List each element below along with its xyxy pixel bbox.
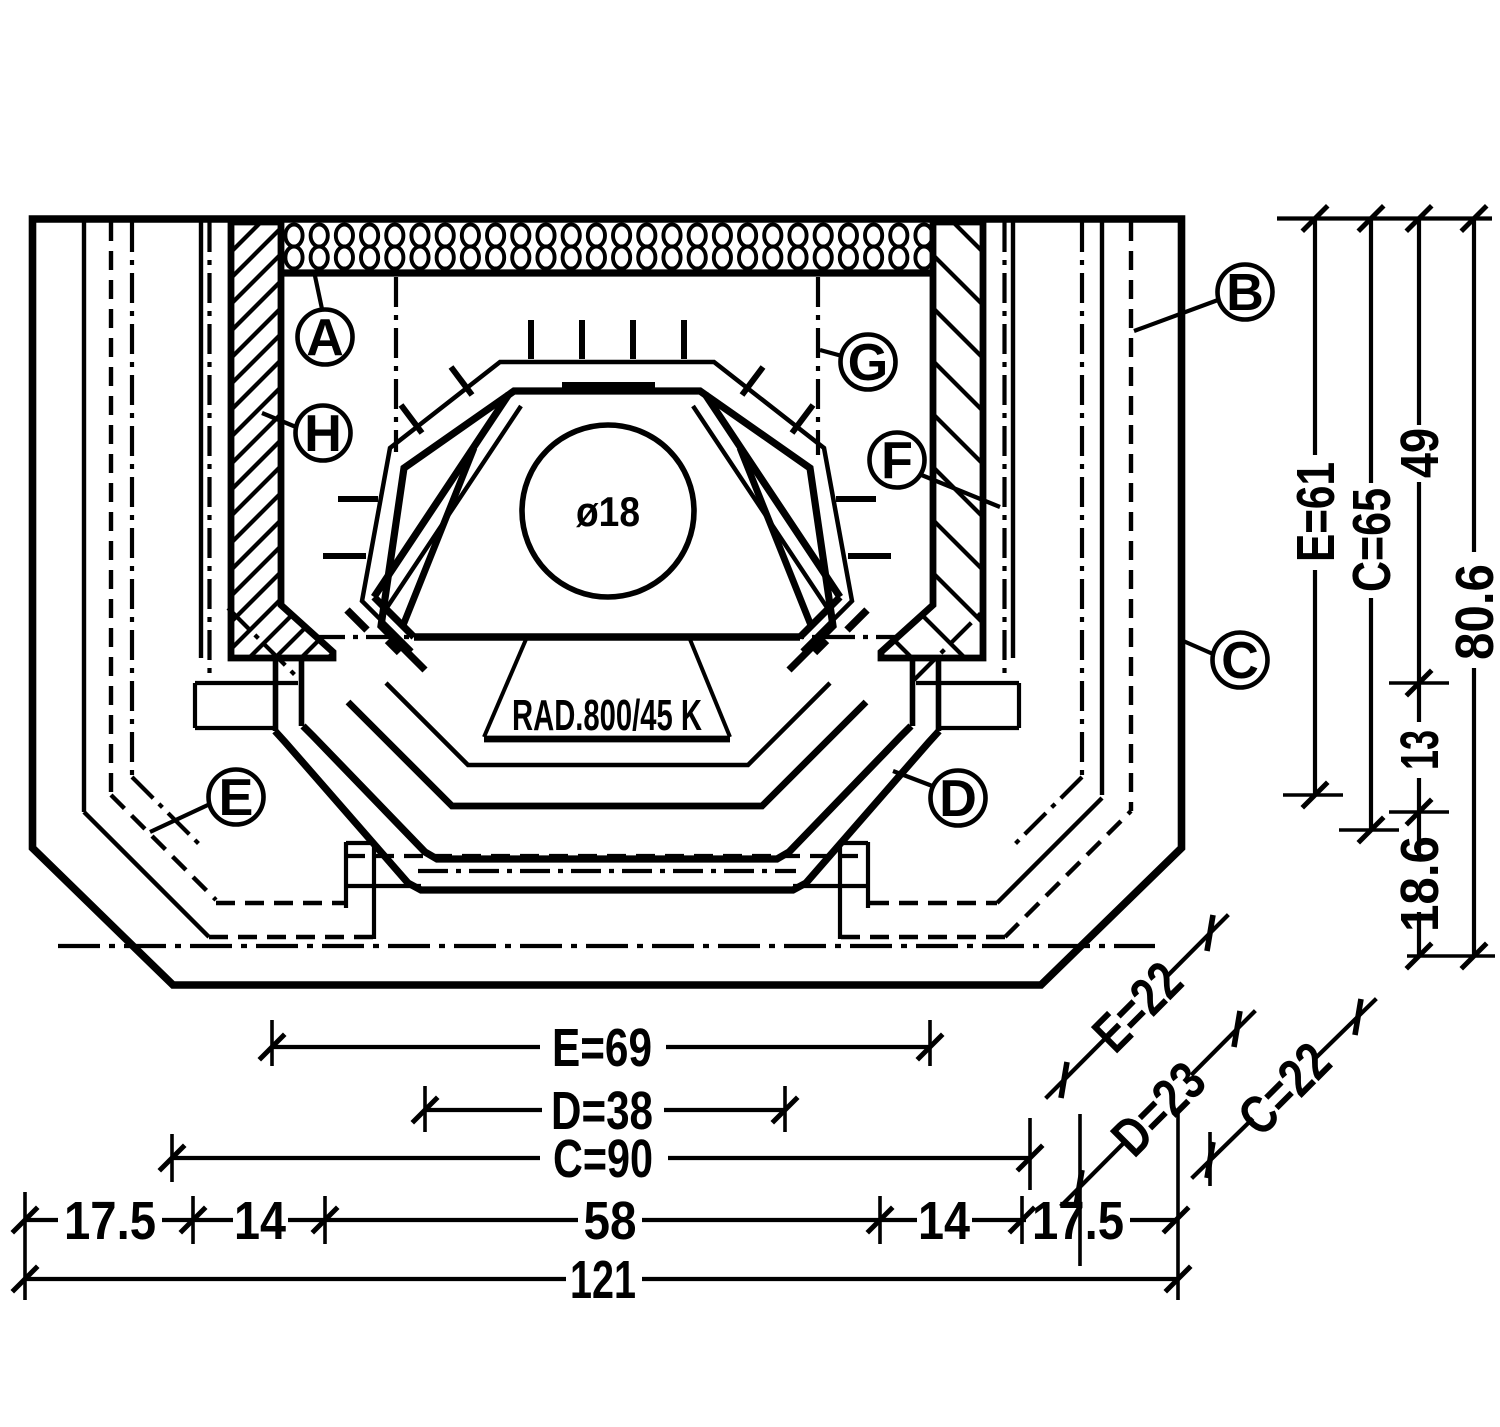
svg-text:80.6: 80.6: [1445, 564, 1500, 660]
svg-text:C=65: C=65: [1342, 488, 1402, 592]
svg-text:G: G: [848, 334, 888, 392]
svg-text:13: 13: [1390, 730, 1450, 770]
svg-text:121: 121: [570, 1250, 636, 1310]
svg-text:17.5: 17.5: [64, 1191, 156, 1251]
svg-text:D: D: [939, 770, 977, 828]
svg-text:E=61: E=61: [1286, 462, 1346, 562]
svg-text:E=69: E=69: [552, 1018, 652, 1078]
svg-text:B: B: [1226, 264, 1264, 322]
svg-text:RAD.800/45 K: RAD.800/45 K: [512, 691, 702, 740]
svg-text:F: F: [881, 432, 913, 490]
svg-text:14: 14: [234, 1191, 286, 1251]
svg-text:C=90: C=90: [553, 1129, 653, 1189]
svg-text:E: E: [219, 769, 254, 827]
svg-text:ø18: ø18: [576, 488, 640, 535]
svg-text:A: A: [306, 309, 344, 367]
svg-text:49: 49: [1390, 428, 1450, 478]
svg-text:18.6: 18.6: [1390, 836, 1450, 932]
svg-text:58: 58: [584, 1191, 637, 1251]
svg-text:14: 14: [918, 1191, 970, 1251]
svg-text:C: C: [1221, 632, 1259, 690]
svg-text:H: H: [304, 405, 342, 463]
